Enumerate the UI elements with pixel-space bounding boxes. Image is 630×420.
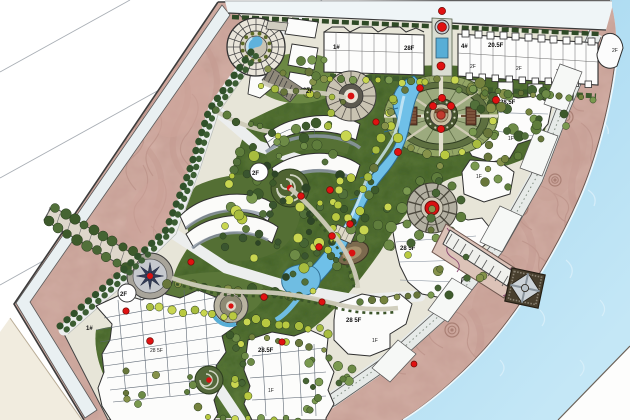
svg-text:28 5F: 28 5F	[346, 318, 362, 324]
svg-text:20.5F: 20.5F	[488, 43, 504, 49]
svg-text:1#: 1#	[333, 45, 340, 51]
svg-text:2F: 2F	[612, 48, 618, 54]
svg-text:28.5F: 28.5F	[258, 348, 274, 354]
svg-text:2F: 2F	[306, 89, 313, 95]
svg-text:1F: 1F	[268, 388, 274, 394]
svg-text:1F: 1F	[508, 136, 514, 142]
svg-text:1F: 1F	[476, 174, 482, 180]
svg-text:1F: 1F	[372, 338, 378, 344]
svg-text:2F: 2F	[252, 171, 259, 177]
svg-text:28 5F: 28 5F	[150, 348, 163, 354]
svg-text:2F: 2F	[470, 64, 476, 70]
svg-text:2F: 2F	[516, 66, 522, 72]
svg-text:1#: 1#	[86, 326, 93, 332]
svg-text:28 5F: 28 5F	[400, 246, 416, 252]
svg-text:28F: 28F	[404, 46, 415, 52]
svg-text:2F: 2F	[120, 292, 127, 298]
svg-text:4#: 4#	[461, 44, 468, 50]
